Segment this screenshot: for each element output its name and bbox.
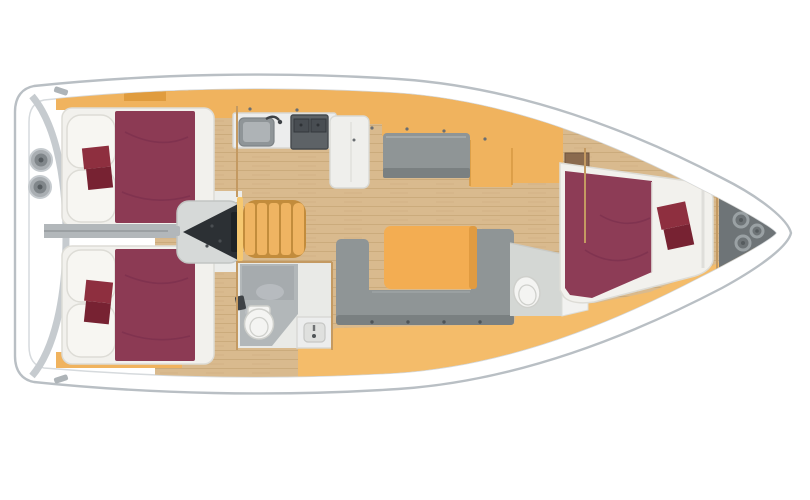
berth-duvet bbox=[115, 249, 195, 361]
salon-table bbox=[384, 226, 477, 289]
folded-blanket bbox=[82, 280, 113, 325]
toilet bbox=[245, 309, 274, 339]
port-settee bbox=[383, 133, 470, 178]
galley-island-fridge bbox=[330, 116, 369, 188]
salon bbox=[336, 226, 514, 325]
engine-compartment bbox=[168, 201, 241, 263]
deck-winch-lower bbox=[29, 176, 51, 198]
deck-winch-upper bbox=[30, 149, 52, 171]
yacht-floorplan-image bbox=[0, 0, 810, 500]
companionway-stairs bbox=[237, 197, 306, 261]
aft-head bbox=[235, 262, 332, 348]
